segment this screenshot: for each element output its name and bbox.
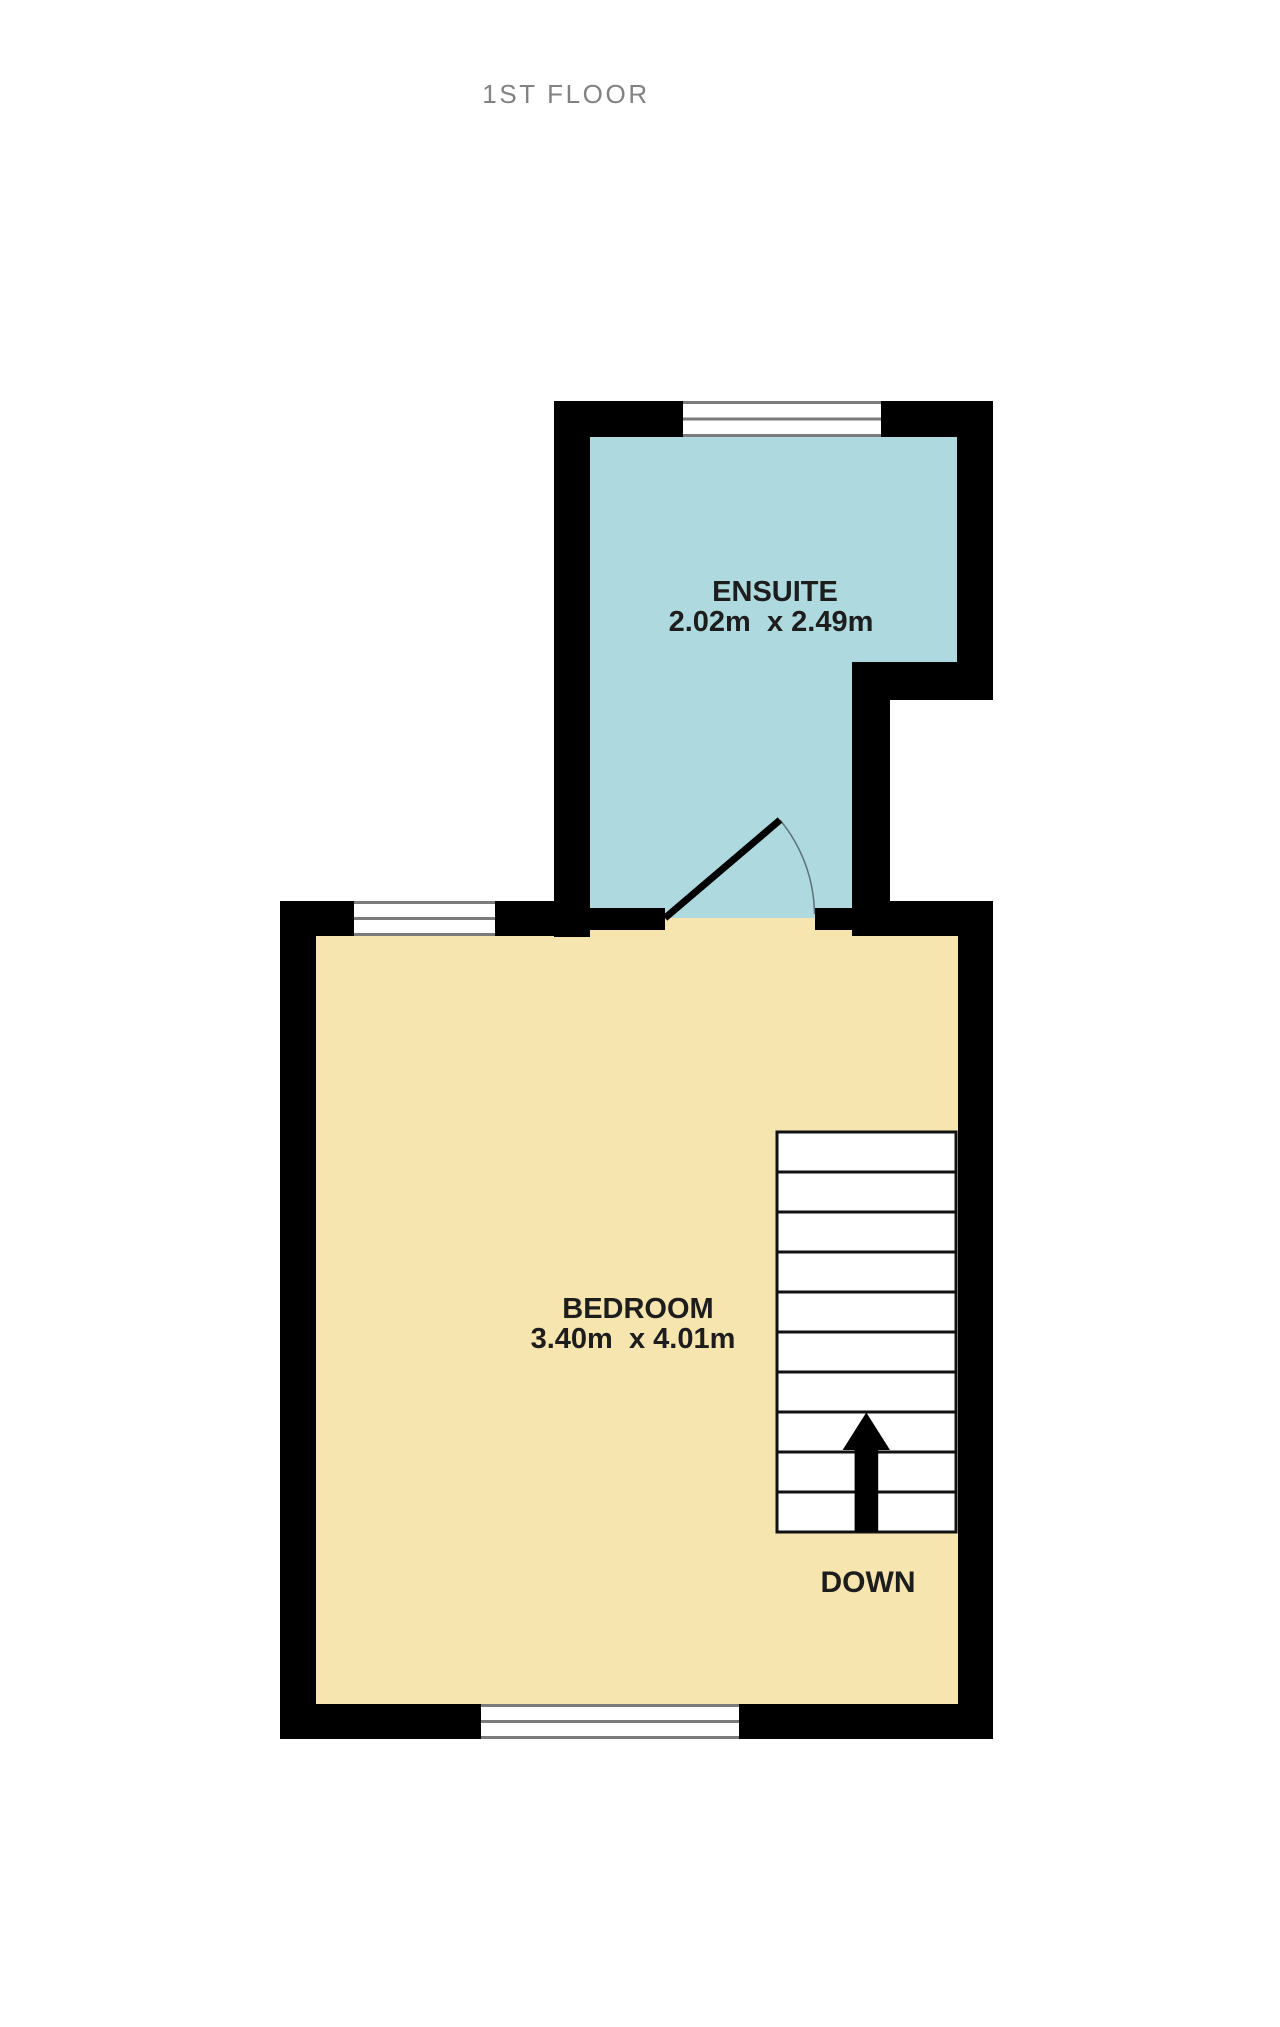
svg-text:2.02m x 2.49m: 2.02m x 2.49m [669,606,874,638]
svg-text:3.40m x 4.01m: 3.40m x 4.01m [531,1323,736,1355]
svg-text:ENSUITE: ENSUITE [712,576,838,608]
svg-text:DOWN: DOWN [821,1566,916,1599]
svg-text:1ST FLOOR: 1ST FLOOR [482,79,649,109]
svg-text:BEDROOM: BEDROOM [562,1293,713,1325]
